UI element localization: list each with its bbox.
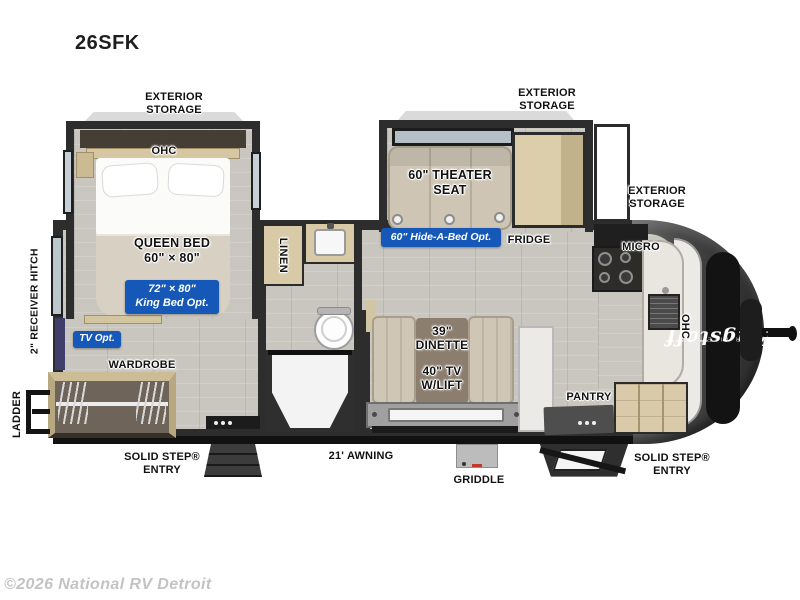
queen-bed-label: QUEEN BED 60" × 80" xyxy=(114,236,230,266)
hinge-dot xyxy=(221,421,225,425)
fastener xyxy=(514,412,519,417)
ladder-rung xyxy=(32,409,50,414)
toilet-tank xyxy=(317,307,351,315)
burner xyxy=(599,272,610,283)
awning-label: 21' AWNING xyxy=(317,450,405,463)
optional-tv xyxy=(55,318,65,370)
model-title: 26SFK xyxy=(75,32,140,56)
pantry-counter xyxy=(544,405,615,435)
kitchen-lower-cabinets xyxy=(614,382,688,434)
wardrobe-hangers xyxy=(58,382,88,424)
griddle-label: GRIDDLE xyxy=(448,474,510,487)
bath-sink xyxy=(314,229,346,256)
cupholder xyxy=(494,212,505,223)
half-wall-shelf xyxy=(84,315,162,324)
refrigerator xyxy=(512,132,586,228)
shower-door xyxy=(268,350,352,355)
kitchen-faucet xyxy=(662,287,669,294)
exterior-storage-label-front: EXTERIOR STORAGE xyxy=(612,185,702,211)
wardrobe-label: WARDROBE xyxy=(97,359,187,372)
jack-knob xyxy=(788,326,797,341)
receiver-hitch-label: 2" RECEIVER HITCH xyxy=(26,226,44,376)
hinge-dot xyxy=(228,421,232,425)
hinge-dot xyxy=(585,421,589,425)
bath-faucet xyxy=(327,223,334,229)
dinette-label: 39" DINETTE xyxy=(405,324,479,352)
king-bed-option-badge: 72" × 80" King Bed Opt. xyxy=(125,280,219,314)
lift-tv xyxy=(388,408,504,422)
fastener xyxy=(372,412,377,417)
micro-label: MICRO xyxy=(612,241,670,254)
linen-label: LINEN xyxy=(264,226,302,284)
ladder-label: LADDER xyxy=(10,390,26,438)
tongue-jack xyxy=(740,299,762,361)
wardrobe-hangers xyxy=(136,382,166,424)
dealer-watermark: ©2026 National RV Detroit xyxy=(4,576,212,594)
rear-window xyxy=(51,236,63,316)
tv-option-badge: TV Opt. xyxy=(73,331,121,348)
kitchen-ohc-label: OHC xyxy=(676,304,694,348)
pillow xyxy=(101,162,159,198)
exterior-storage-label-theater: EXTERIOR STORAGE xyxy=(502,87,592,113)
griddle-knob xyxy=(462,462,466,466)
nightstand xyxy=(76,152,94,178)
cupholder xyxy=(392,214,403,225)
griddle-indicator xyxy=(472,464,482,467)
toilet-seat xyxy=(321,316,347,342)
cupholder xyxy=(444,214,455,225)
burner xyxy=(619,270,633,284)
exterior-storage-label-bedroom: EXTERIOR STORAGE xyxy=(129,91,219,117)
pantry-label: PANTRY xyxy=(551,391,627,404)
entry-steps-left xyxy=(204,444,262,477)
hide-a-bed-option-badge: 60" Hide-A-Bed Opt. xyxy=(381,228,501,247)
tv-lift-label: 40" TV W/LIFT xyxy=(405,364,479,392)
entry-left-label: SOLID STEP® ENTRY xyxy=(117,451,207,477)
bedroom-window xyxy=(63,150,73,214)
fridge-label: FRIDGE xyxy=(500,234,558,247)
top-wall-stub xyxy=(53,220,73,230)
hinge-dot xyxy=(578,421,582,425)
burner xyxy=(598,252,612,266)
bedroom-ohc-label: OHC xyxy=(144,145,184,158)
pillow xyxy=(167,163,225,198)
hinge-dot xyxy=(214,421,218,425)
theater-window xyxy=(392,128,514,146)
floorplan-diagram: 26SFK OHC QUEEN BED 60" × 80" 72" × 80" … xyxy=(0,0,800,600)
bedroom-window xyxy=(251,152,261,210)
tv-lift-base xyxy=(372,426,518,433)
theater-seat-label: 60" THEATER SEAT xyxy=(392,168,508,198)
hinge-dot xyxy=(592,421,596,425)
entry-right-label: SOLID STEP® ENTRY xyxy=(626,452,718,478)
